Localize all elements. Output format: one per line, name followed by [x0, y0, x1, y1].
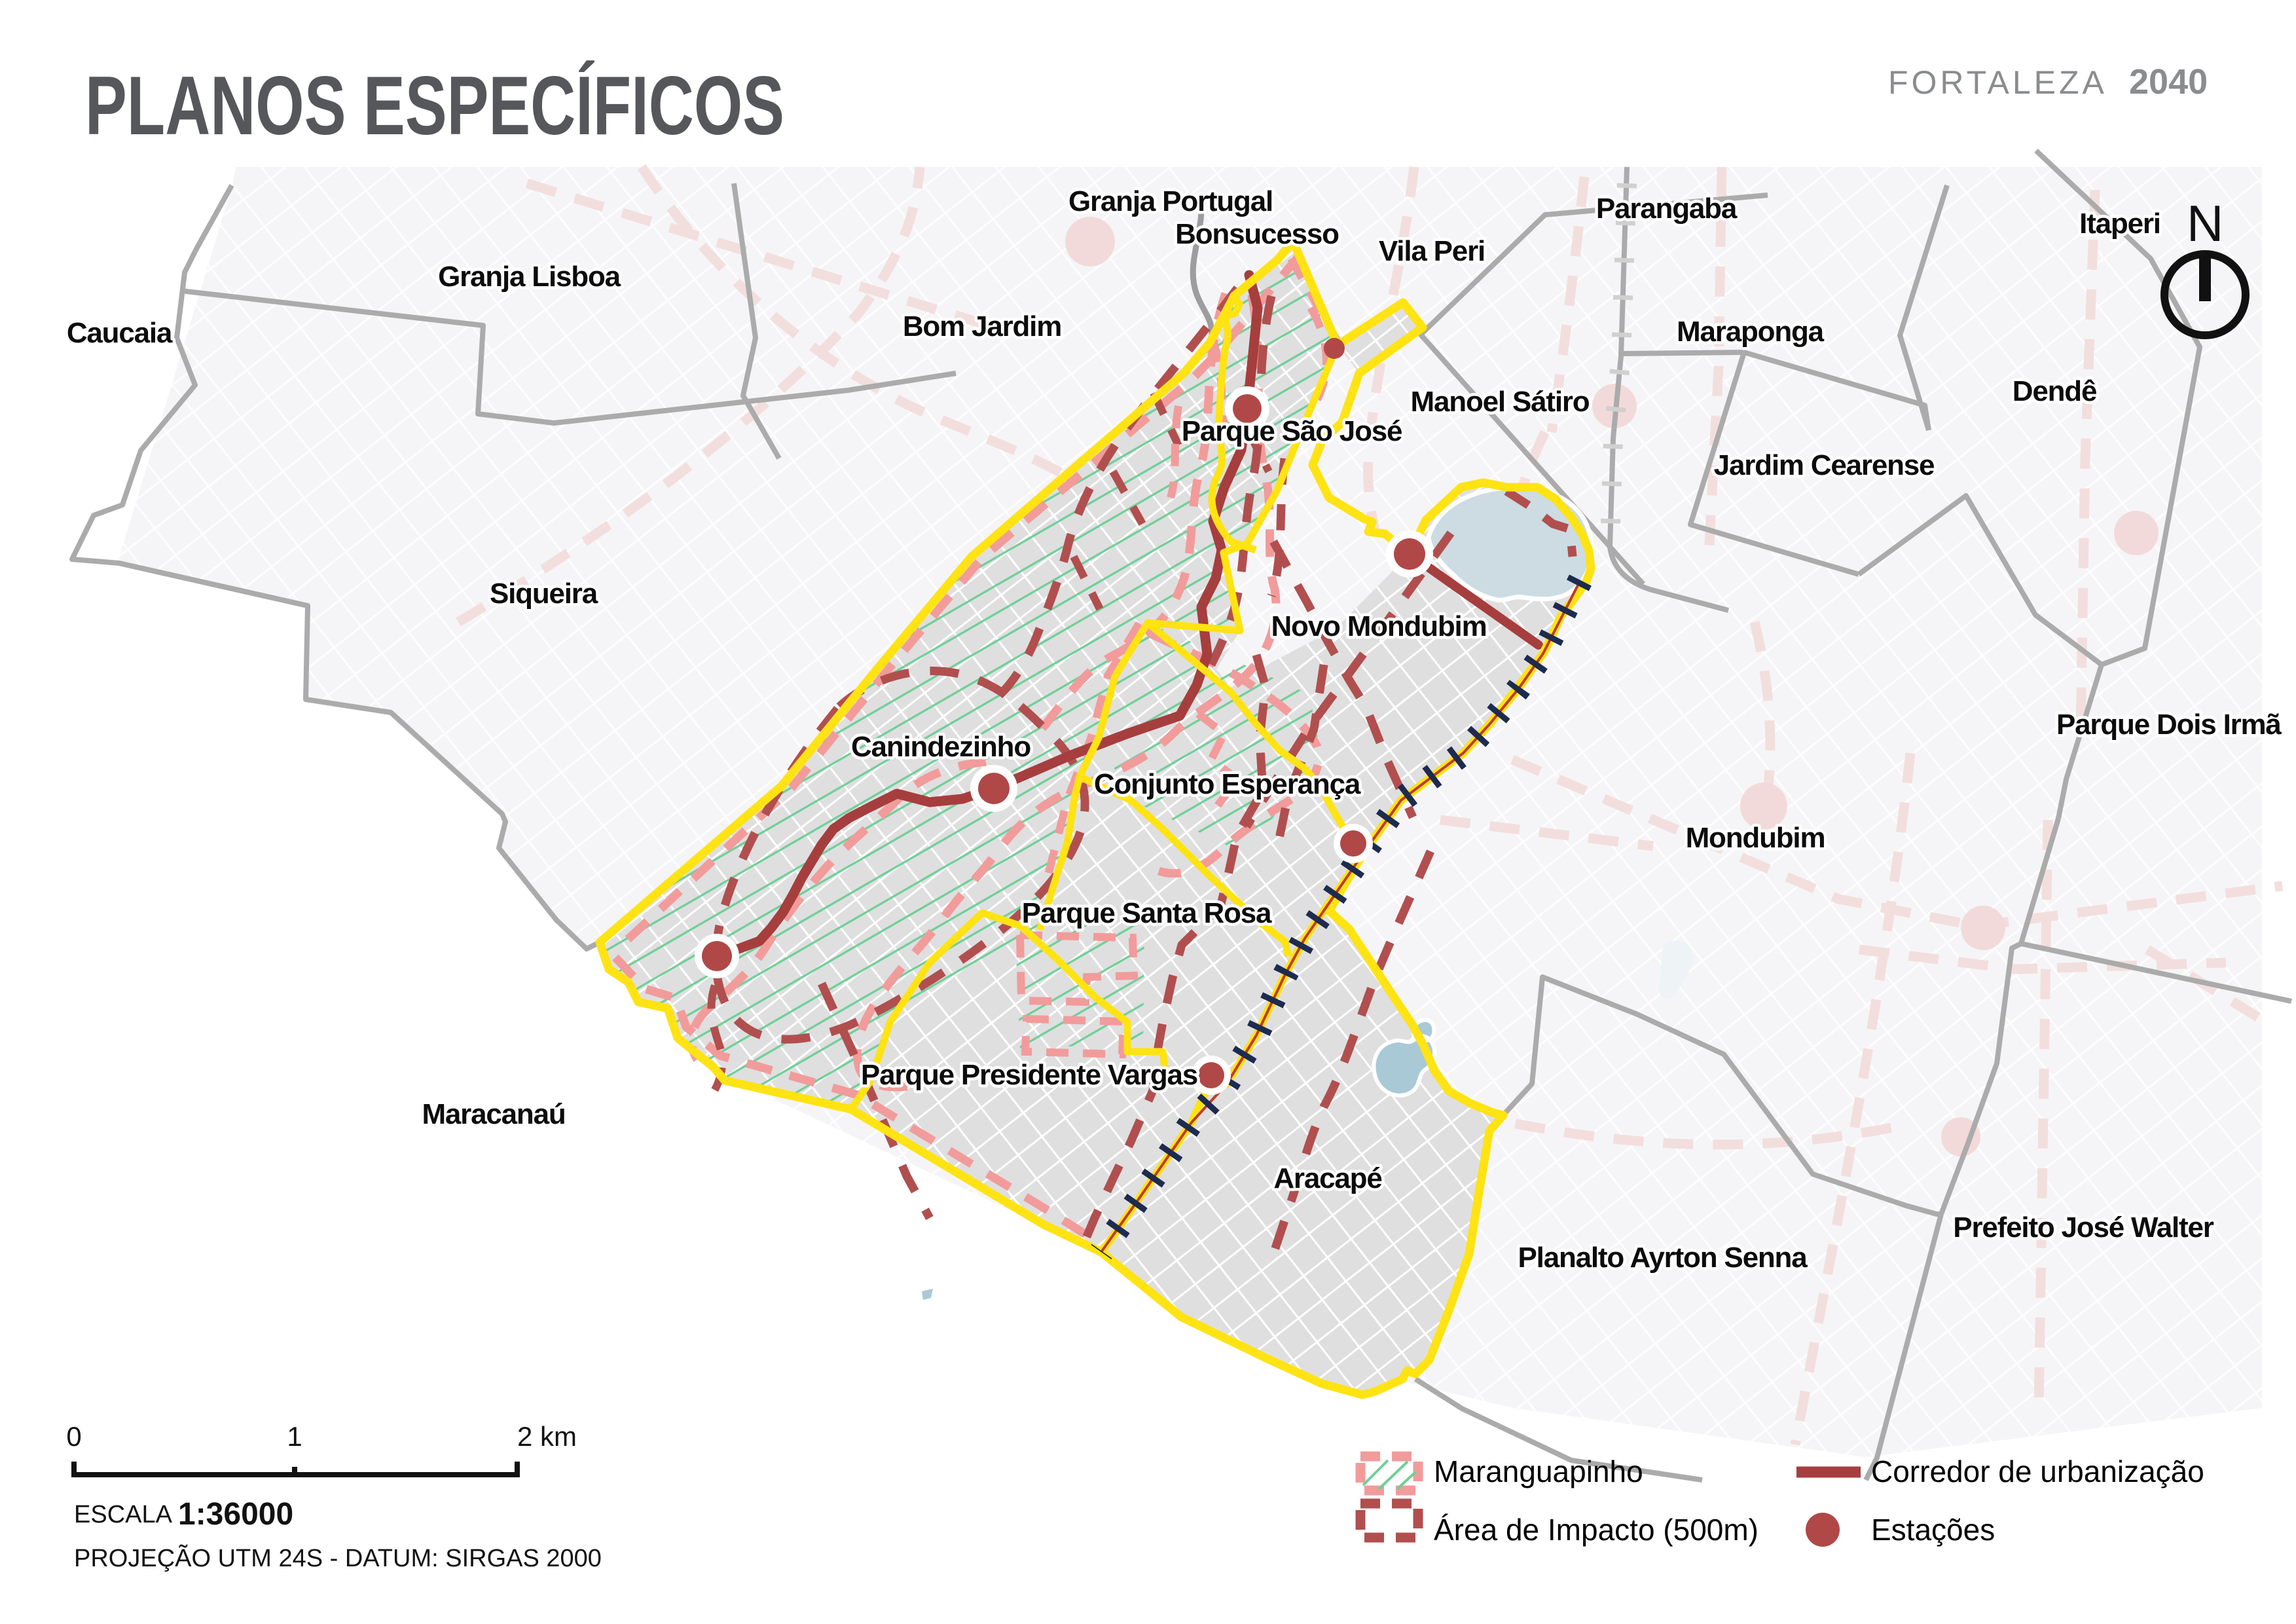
svg-text:Corredor de urbanização: Corredor de urbanização: [1871, 1454, 2204, 1488]
svg-text:2 km: 2 km: [517, 1421, 577, 1452]
svg-text:Área de Impacto (500m): Área de Impacto (500m): [1434, 1513, 1758, 1547]
svg-text:PLANOS ESPECÍFICOS: PLANOS ESPECÍFICOS: [85, 59, 784, 152]
svg-text:Caucaia: Caucaia: [67, 317, 173, 349]
svg-text:2040: 2040: [2129, 62, 2208, 101]
svg-text:Vila Peri: Vila Peri: [1379, 235, 1485, 267]
svg-text:Prefeito José Walter: Prefeito José Walter: [1953, 1211, 2214, 1244]
svg-text:ESCALA: ESCALA: [74, 1501, 173, 1528]
svg-text:Canindezinho: Canindezinho: [851, 731, 1030, 763]
svg-text:Siqueira: Siqueira: [490, 578, 598, 610]
svg-text:Parque São José: Parque São José: [1182, 415, 1402, 447]
svg-text:Parque Presidente Vargas: Parque Presidente Vargas: [861, 1059, 1197, 1091]
svg-text:1: 1: [287, 1421, 302, 1452]
svg-text:Granja Lisboa: Granja Lisboa: [438, 261, 621, 293]
svg-text:Maracanaú: Maracanaú: [422, 1098, 565, 1130]
svg-text:Parque Santa Rosa: Parque Santa Rosa: [1022, 897, 1272, 929]
svg-text:Maranguapinho: Maranguapinho: [1434, 1454, 1643, 1488]
svg-text:Mondubim: Mondubim: [1686, 822, 1825, 854]
svg-text:Estações: Estações: [1871, 1513, 1995, 1547]
svg-text:Granja Portugal: Granja Portugal: [1068, 185, 1273, 217]
svg-text:Novo Mondubim: Novo Mondubim: [1271, 610, 1486, 642]
svg-text:PROJEÇÃO UTM 24S - DATUM: SIRG: PROJEÇÃO UTM 24S - DATUM: SIRGAS 2000: [74, 1544, 602, 1572]
svg-text:Aracapé: Aracapé: [1273, 1162, 1381, 1194]
svg-text:Maraponga: Maraponga: [1677, 316, 1825, 348]
svg-text:Conjunto Esperança: Conjunto Esperança: [1094, 768, 1361, 800]
svg-text:FORTALEZA: FORTALEZA: [1888, 64, 2107, 101]
svg-text:Bonsucesso: Bonsucesso: [1175, 218, 1339, 250]
svg-text:N: N: [2187, 194, 2223, 252]
svg-text:0: 0: [66, 1421, 81, 1452]
svg-text:Dendê: Dendê: [2013, 375, 2096, 407]
svg-text:Manoel Sátiro: Manoel Sátiro: [1411, 386, 1590, 418]
svg-text:Bom Jardim: Bom Jardim: [903, 310, 1061, 342]
svg-text:Jardim Cearense: Jardim Cearense: [1714, 449, 1935, 481]
svg-text:Parque Dois Irmã: Parque Dois Irmã: [2056, 709, 2282, 741]
svg-text:Planalto Ayrton Senna: Planalto Ayrton Senna: [1518, 1242, 1808, 1274]
svg-text:Itaperi: Itaperi: [2079, 208, 2160, 240]
svg-text:Parangaba: Parangaba: [1596, 193, 1738, 225]
svg-text:1:36000: 1:36000: [178, 1497, 293, 1532]
